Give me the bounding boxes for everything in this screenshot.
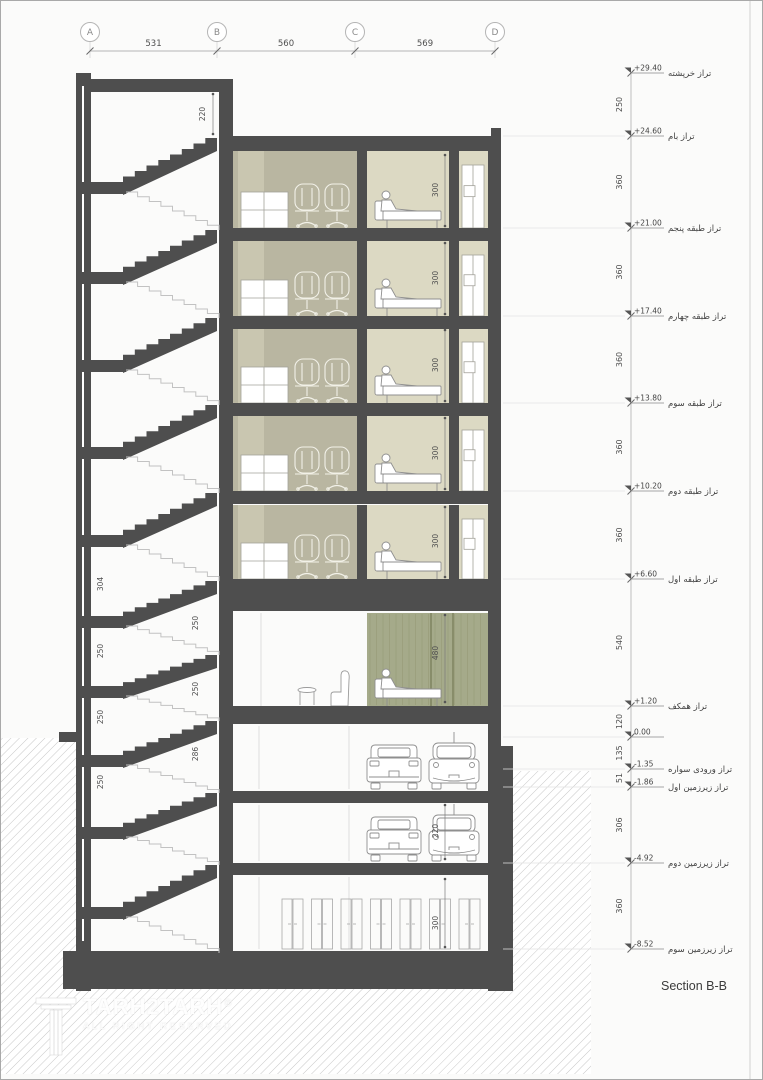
sofa-seat — [383, 689, 441, 698]
shelf-unit-icon — [462, 255, 484, 316]
sofa-seat — [383, 562, 441, 571]
section-title: Section B-B — [629, 979, 759, 993]
interior-dimension-text: 300 — [431, 916, 440, 931]
interior-dimension-text: 300 — [431, 446, 440, 461]
grid-dimension-text: 531 — [145, 39, 161, 49]
partition-wall — [357, 241, 367, 316]
level-flag-icon — [625, 732, 632, 738]
car-window — [437, 746, 471, 758]
taillight — [409, 833, 418, 838]
level-label: تراز زیرزمین اول — [668, 783, 729, 793]
stair-flight-cut — [123, 793, 217, 840]
dimension-endpoint — [444, 506, 447, 509]
shelf-unit-icon — [462, 430, 484, 491]
stair-shaft-wall — [219, 79, 233, 951]
taillight — [370, 761, 379, 766]
stair-flight-beyond — [126, 696, 219, 721]
level-flag-icon — [625, 131, 632, 137]
floor-slab — [219, 228, 501, 241]
partition-wall — [357, 151, 367, 228]
license-plate — [389, 843, 399, 849]
stair-flight-cut — [123, 721, 217, 768]
person-head — [382, 366, 390, 374]
foundation-slab — [63, 951, 513, 989]
taillight — [470, 763, 475, 768]
stair-flight-beyond — [126, 917, 219, 953]
shelf-square — [464, 538, 475, 549]
partition-wall — [449, 505, 459, 579]
level-label: تراز طبقه چهارم — [668, 312, 727, 322]
level-flag-icon — [625, 223, 632, 229]
storage-locker-icon — [341, 899, 362, 949]
level-value: +10.20 — [634, 482, 662, 491]
interior-dimension-text: 300 — [431, 183, 440, 198]
interior-dimension-text: 250 — [96, 710, 105, 725]
sofa-seat — [383, 211, 441, 220]
level-flag-icon — [625, 311, 632, 317]
level-value: -4.92 — [634, 854, 654, 863]
stair-flight-beyond — [126, 192, 219, 230]
level-flag-icon — [625, 574, 632, 580]
right-exterior-wall — [488, 136, 501, 746]
cabinet-icon — [241, 280, 288, 316]
basement2-slab — [219, 863, 501, 875]
wheel — [371, 855, 380, 861]
partition-wall — [357, 416, 367, 491]
wheel — [432, 855, 441, 861]
stair-flight-cut — [123, 581, 217, 629]
stair-landing — [76, 686, 126, 698]
car-sedan-rear-icon — [367, 817, 421, 861]
interior-dimension-text: 220 — [198, 107, 207, 122]
level-dimension-text: 135 — [615, 745, 624, 760]
interior-dimension-text: 304 — [96, 577, 105, 592]
grid-bubble-label: D — [492, 28, 499, 38]
interior-dimension-text: 250 — [96, 644, 105, 659]
cabinet-icon — [241, 367, 288, 403]
grid-bubble-label: A — [87, 28, 94, 38]
grid-header: ABCD531560569 — [81, 23, 505, 59]
shelf-unit-icon — [462, 165, 484, 228]
level-dimension-text: 120 — [615, 714, 624, 729]
cabinet-icon — [241, 543, 288, 579]
level-value: 0.00 — [634, 728, 651, 737]
interior-dimension-text: 250 — [96, 775, 105, 790]
ground-floor-slab — [219, 706, 501, 724]
grid-dimension-text: 560 — [278, 39, 294, 49]
dimension-endpoint — [444, 313, 447, 316]
stair-flight-beyond — [126, 545, 219, 581]
storage-lockers — [282, 899, 480, 949]
interior-dimension-text: 300 — [431, 271, 440, 286]
stairwell-stairs — [76, 138, 219, 953]
storage-locker-icon — [459, 899, 480, 949]
dimension-endpoint — [444, 225, 447, 228]
logo-column-icon — [35, 995, 77, 1057]
interior-dimension-text: 480 — [431, 646, 440, 661]
dimension-endpoint — [444, 329, 447, 332]
dimension-endpoint — [444, 614, 447, 617]
level-flag-icon — [625, 486, 632, 492]
grid-dimension-text: 569 — [417, 39, 433, 49]
dimension-endpoint — [444, 154, 447, 157]
level-value: +6.60 — [634, 570, 657, 579]
storage-locker-icon — [371, 899, 392, 949]
shelf-unit-icon — [462, 342, 484, 403]
wheel — [408, 855, 417, 861]
stair-flight-cut — [123, 230, 217, 285]
level-label: تراز طبقه اول — [668, 575, 718, 585]
level-value: -1.35 — [634, 760, 654, 769]
level-label: تراز بام — [668, 132, 695, 142]
shelf-square — [464, 450, 475, 461]
level-label: تراز طبقه دوم — [668, 487, 719, 497]
dimension-endpoint — [212, 133, 215, 136]
floor-slab — [219, 316, 501, 329]
stair-landing — [76, 907, 126, 919]
stair-flight-cut — [123, 493, 217, 548]
dimension-endpoint — [444, 488, 447, 491]
logo-title: TARH2TARH® — [83, 995, 233, 1019]
taillight — [434, 763, 439, 768]
person-head — [382, 669, 390, 677]
partition-wall — [449, 328, 459, 403]
partition-wall — [449, 241, 459, 316]
level-value: +24.60 — [634, 127, 662, 136]
level-flag-icon — [625, 782, 632, 788]
partition-wall — [449, 151, 459, 228]
stair-flight-cut — [123, 405, 217, 460]
car-hatchback-rear-icon — [429, 732, 479, 789]
stair-landing — [76, 535, 126, 547]
level-dimension-text: 360 — [615, 264, 624, 279]
logo-text: TARH2TARH® ALL RIGHT RESERVED — [83, 995, 233, 1032]
stair-flight-beyond — [126, 765, 219, 793]
dimension-endpoint — [444, 946, 447, 949]
stair-flight-beyond — [126, 837, 219, 865]
wheel — [467, 783, 476, 789]
stair-landing — [76, 360, 126, 372]
level-label: تراز همکف — [668, 702, 708, 712]
interior-dimension-text: 220 — [431, 824, 440, 839]
partition-wall — [357, 505, 367, 579]
partition-wall — [449, 416, 459, 491]
interior-dimension-text: 300 — [431, 534, 440, 549]
level-label: تراز ورودی سواره — [668, 765, 733, 775]
level-flag-icon — [625, 764, 632, 770]
storage-locker-icon — [282, 899, 303, 949]
level-flag-icon — [625, 701, 632, 707]
basement1-slab — [219, 791, 501, 803]
level-dimension-text: 360 — [615, 174, 624, 189]
sofa-seat — [383, 299, 441, 308]
stair-flight-beyond — [126, 282, 219, 318]
shelf-square — [464, 186, 475, 197]
first-floor-slab — [219, 579, 501, 611]
wheel — [371, 783, 380, 789]
stair-flight-beyond — [126, 457, 219, 493]
person-head — [382, 454, 390, 462]
taillight — [470, 835, 475, 840]
stool-top — [298, 688, 316, 693]
dimension-endpoint — [444, 858, 447, 861]
level-flag-icon — [625, 858, 632, 864]
stair-flight-cut — [123, 865, 217, 920]
person-head — [382, 279, 390, 287]
level-dimension-text: 51 — [615, 773, 624, 783]
level-flag-icon — [625, 68, 632, 74]
person-head — [382, 191, 390, 199]
car-sedan-rear-icon — [367, 745, 421, 789]
floor-slab — [219, 403, 501, 416]
shelf-square — [464, 275, 475, 286]
wing-chair-outline — [331, 671, 349, 706]
stair-flight-cut — [123, 138, 217, 195]
cabinet-icon — [241, 455, 288, 491]
level-flag-icon — [625, 398, 632, 404]
wheel — [432, 783, 441, 789]
stair-flight-cut — [123, 318, 217, 373]
floor-slab — [219, 491, 501, 504]
level-value: +17.40 — [634, 307, 662, 316]
wing-chair-icon — [298, 671, 349, 706]
interior-dimension-text: 300 — [431, 358, 440, 373]
dimension-endpoint — [444, 878, 447, 881]
logo-subtitle: ALL RIGHT RESERVED — [83, 1021, 233, 1032]
stair-landing — [76, 447, 126, 459]
wheel — [467, 855, 476, 861]
level-value: +21.00 — [634, 219, 662, 228]
shelf-square — [464, 362, 475, 373]
dimension-endpoint — [444, 701, 447, 704]
logo: TARH2TARH® ALL RIGHT RESERVED — [35, 995, 233, 1057]
stair-landing — [76, 827, 126, 839]
level-flag-icon — [625, 944, 632, 950]
level-label: تراز خرپشته — [668, 69, 712, 79]
grid-bubble-label: C — [352, 28, 358, 38]
entrance-canopy — [59, 732, 76, 742]
level-dimension-text: 360 — [615, 527, 624, 542]
sofa-seat — [383, 474, 441, 483]
dimension-endpoint — [444, 400, 447, 403]
building-section-drawing: 2203003003003003004802203003042502502502… — [1, 1, 763, 1080]
sofa-seat — [383, 386, 441, 395]
cabinet-icon — [241, 192, 288, 228]
interior-dimension-text: 286 — [191, 747, 200, 762]
stair-landing — [76, 616, 126, 628]
level-value: +1.20 — [634, 697, 657, 706]
level-label: تراز زیرزمین سوم — [668, 945, 733, 955]
level-dimension-text: 360 — [615, 352, 624, 367]
stair-flight-beyond — [126, 626, 219, 655]
taillight — [370, 833, 379, 838]
car-window — [437, 818, 471, 830]
level-dimension-text: 360 — [615, 898, 624, 913]
dimension-endpoint — [444, 576, 447, 579]
roof-parapet — [491, 128, 501, 137]
license-plate — [389, 771, 399, 777]
stair-flight-beyond — [126, 370, 219, 405]
right-basement-wall — [488, 746, 513, 991]
bulkhead-roof-slab — [76, 79, 233, 92]
interior-dimension-text: 250 — [191, 682, 200, 697]
stair-landing — [76, 182, 126, 194]
storage-locker-icon — [312, 899, 333, 949]
car-window — [378, 748, 410, 757]
stair-landing — [76, 755, 126, 767]
level-dimension-text: 540 — [615, 635, 624, 650]
dimension-endpoint — [444, 242, 447, 245]
level-label: تراز طبقه سوم — [668, 399, 723, 409]
grid-bubble-label: B — [214, 28, 220, 38]
level-label: تراز زیرزمین دوم — [668, 859, 730, 869]
level-dimension-text: 360 — [615, 439, 624, 454]
wheel — [408, 783, 417, 789]
level-value: +29.40 — [634, 64, 662, 73]
shelf-unit-icon — [462, 519, 484, 579]
stair-flight-cut — [123, 655, 217, 699]
stair-landing — [76, 272, 126, 284]
car-window — [378, 820, 410, 829]
dimension-endpoint — [444, 417, 447, 420]
dimension-endpoint — [444, 804, 447, 807]
roof-slab — [219, 136, 501, 151]
level-dimension-text: 306 — [615, 817, 624, 832]
interior-dimension-text: 250 — [191, 616, 200, 631]
level-value: -8.52 — [634, 940, 654, 949]
taillight — [409, 761, 418, 766]
level-value: -1.86 — [634, 778, 654, 787]
level-dimension-text: 250 — [615, 97, 624, 112]
logo-registered-mark: ® — [224, 998, 232, 1009]
storage-locker-icon — [400, 899, 421, 949]
level-label: تراز طبقه پنجم — [668, 224, 722, 234]
drawing-sheet: 2203003003003003004802203003042502502502… — [0, 0, 763, 1080]
level-value: +13.80 — [634, 394, 662, 403]
partition-wall — [357, 328, 367, 403]
person-head — [382, 542, 390, 550]
dimension-endpoint — [212, 93, 215, 96]
